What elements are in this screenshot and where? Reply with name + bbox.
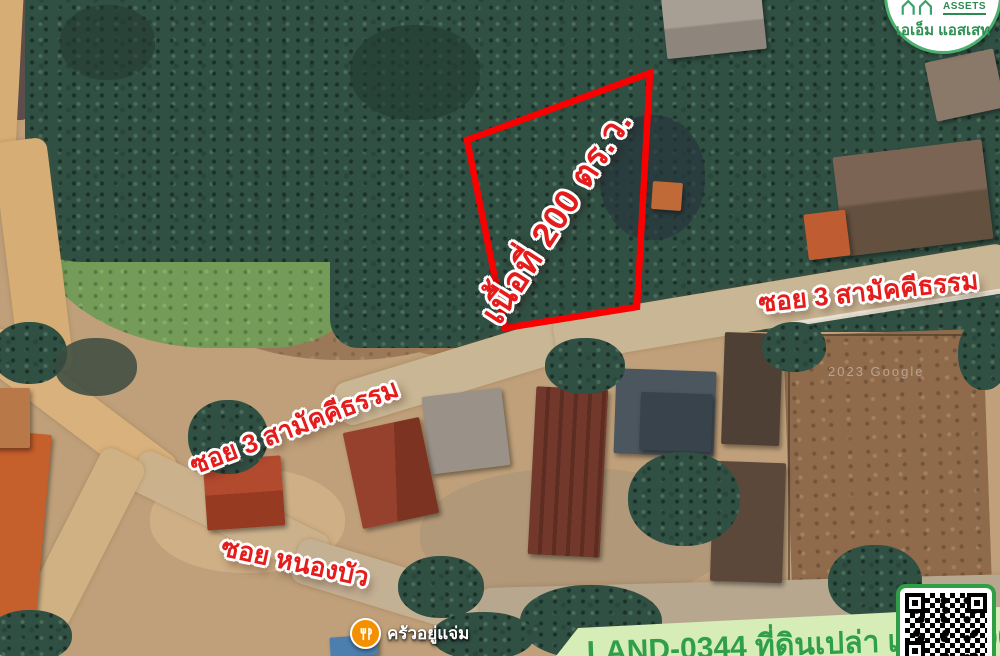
restaurant-icon xyxy=(350,618,381,649)
brand-name-th: เอเอ็ม แอสเสท xyxy=(896,18,990,42)
houses-icon xyxy=(900,0,940,15)
satellite-map-canvas[interactable]: 2023 Google เนื้อที่ 200 ตร.ว. ซอย 3 สาม… xyxy=(0,0,1000,656)
qr-code xyxy=(896,584,996,656)
brand-name-en: ASSETS xyxy=(943,2,986,15)
poi-restaurant-marker[interactable]: ครัวอยู่แจ่ม xyxy=(350,618,469,649)
qr-pattern xyxy=(905,593,987,656)
poi-restaurant-name: ครัวอยู่แจ่ม xyxy=(387,620,469,647)
